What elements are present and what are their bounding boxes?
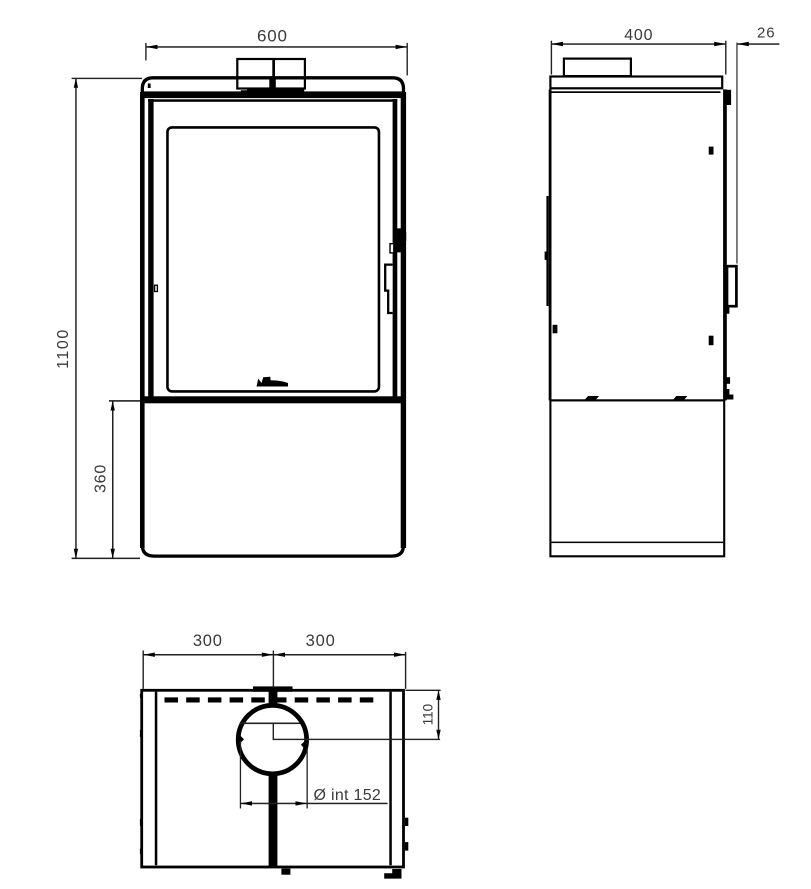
svg-text:26: 26 bbox=[757, 25, 775, 42]
svg-text:110: 110 bbox=[421, 704, 436, 726]
svg-text:1100: 1100 bbox=[55, 328, 72, 369]
svg-text:400: 400 bbox=[624, 27, 653, 44]
svg-text:600: 600 bbox=[257, 27, 288, 46]
svg-text:300: 300 bbox=[193, 632, 223, 650]
svg-text:360: 360 bbox=[93, 464, 110, 493]
svg-text:300: 300 bbox=[306, 632, 336, 650]
svg-text:Ø int 152: Ø int 152 bbox=[314, 787, 382, 804]
